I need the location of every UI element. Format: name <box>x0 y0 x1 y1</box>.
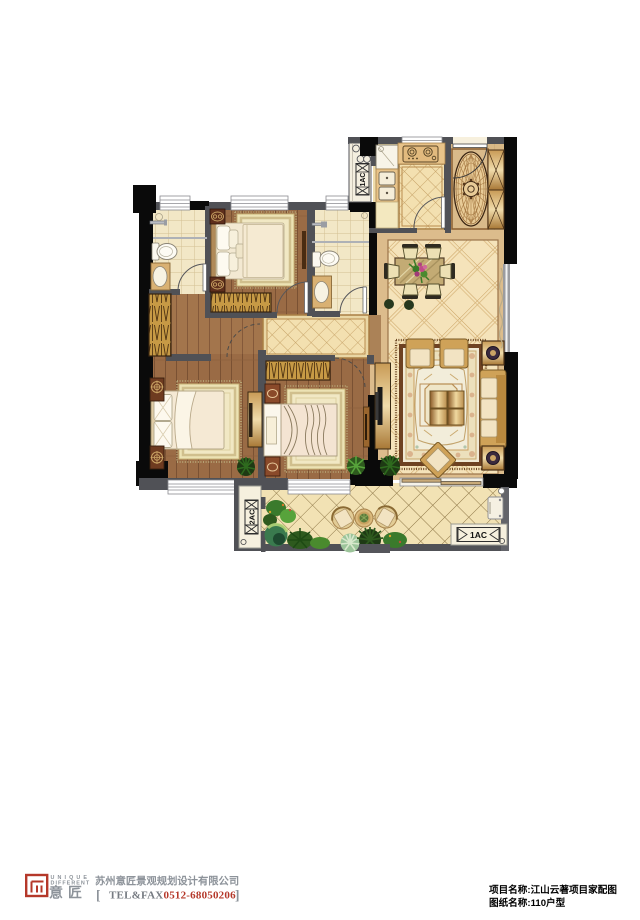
svg-text:图纸名称:110户型: 图纸名称:110户型 <box>489 897 566 909</box>
svg-text:1AC: 1AC <box>360 172 367 186</box>
svg-text:2AC: 2AC <box>248 509 257 525</box>
svg-text:意匠: 意匠 <box>49 885 87 901</box>
svg-text:1AC: 1AC <box>470 530 487 540</box>
svg-text:TEL&FAX: TEL&FAX <box>109 890 163 902</box>
svg-text:0512-68050206: 0512-68050206 <box>164 890 237 902</box>
svg-text:]: ] <box>235 888 240 903</box>
svg-text:项目名称:江山云著项目家配图: 项目名称:江山云著项目家配图 <box>489 884 617 896</box>
svg-text:苏州意匠景观规划设计有限公司: 苏州意匠景观规划设计有限公司 <box>95 875 239 888</box>
svg-text:[: [ <box>96 888 101 903</box>
